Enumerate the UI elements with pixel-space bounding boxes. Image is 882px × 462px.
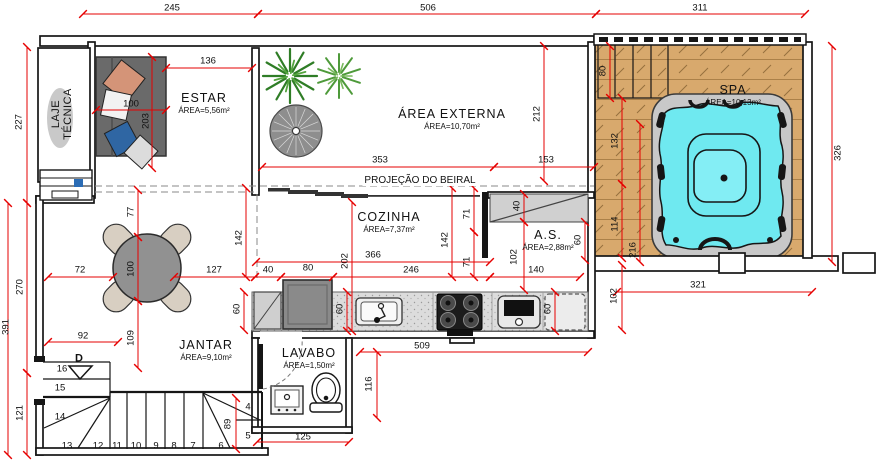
floor-plan: LAJE TÉCNICA ESTAR ÁREA=5,56m² ÁREA EXTE…	[0, 0, 882, 462]
floor-drain	[69, 366, 92, 379]
stair-step-number: 7	[190, 441, 195, 451]
fridge	[283, 280, 332, 329]
dimension-label: 270	[15, 279, 25, 295]
round-table	[113, 234, 181, 302]
dimension-label: 140	[528, 265, 544, 275]
dimension-label: 100	[123, 99, 139, 109]
as-shelf	[490, 194, 588, 222]
dimension-label: 71	[462, 257, 472, 268]
stair-step-number: 8	[171, 441, 176, 451]
toilet	[310, 373, 342, 412]
dimension-label: 102	[609, 288, 619, 304]
dimension-label: 136	[200, 56, 216, 66]
dimension-label: 40	[512, 201, 522, 212]
room-area: ÁREA=10,70m²	[398, 122, 506, 131]
dimension-label: 142	[440, 232, 450, 248]
dimension-label: 311	[692, 3, 707, 13]
dimension-label: 202	[340, 253, 350, 269]
dimension-label: 121	[15, 405, 25, 421]
plant-icon	[318, 54, 360, 98]
room-label-area-externa: ÁREA EXTERNA ÁREA=10,70m²	[398, 107, 506, 131]
dimension-label: 353	[372, 155, 388, 165]
dimension-label: 116	[364, 376, 374, 391]
room-name: ÁREA EXTERNA	[398, 107, 506, 121]
stair-step-number: 15	[55, 383, 66, 393]
floor-plan-drawing	[0, 0, 882, 462]
stair-step-number: 14	[55, 412, 66, 422]
dimension-label: 60	[335, 304, 345, 315]
dimension-label: 506	[420, 3, 436, 13]
dining-set	[98, 219, 196, 317]
dimension-label: 127	[206, 265, 222, 275]
room-area: ÁREA=2,88m²	[522, 243, 573, 252]
room-label-estar: ESTAR ÁREA=5,56m²	[178, 91, 229, 115]
room-label-jantar: JANTAR ÁREA=9,10m²	[179, 338, 233, 362]
drain-label: D	[73, 354, 85, 365]
stove	[437, 294, 482, 336]
dimension-label: 100	[126, 261, 136, 277]
dimension-label: 60	[232, 304, 242, 315]
room-label-lavabo: LAVABO ÁREA=1,50m²	[282, 346, 336, 370]
stair-step-number: 6	[218, 441, 223, 451]
lavabo-sink	[271, 386, 303, 414]
stair-step-number: 4	[245, 402, 250, 412]
stair-step-number: 13	[62, 441, 73, 451]
room-label-cozinha: COZINHA ÁREA=7,37m²	[357, 210, 420, 234]
room-name: COZINHA	[357, 210, 420, 224]
dimension-label: 227	[14, 114, 24, 130]
dimension-label: 245	[164, 3, 180, 13]
stair-step-number: 10	[131, 441, 142, 451]
dimension-label: 142	[234, 230, 244, 246]
room-name: A.S.	[522, 228, 573, 242]
dimension-label: 102	[509, 249, 519, 265]
room-label-laje-tecnica: LAJE TÉCNICA	[50, 74, 74, 154]
dimension-label: 71	[462, 209, 472, 220]
dimension-label: 509	[414, 341, 430, 351]
dimension-label: 246	[403, 265, 419, 275]
dimension-label: 60	[573, 235, 583, 246]
as-wall-stub	[482, 192, 488, 258]
room-label-as: A.S. ÁREA=2,88m²	[522, 228, 573, 252]
dimension-label: 60	[543, 304, 553, 315]
sliding-door	[268, 188, 480, 198]
dimension-label: 77	[126, 207, 136, 218]
hot-tub	[652, 94, 792, 258]
room-name: LAVABO	[282, 346, 336, 360]
stair-step-number: 16	[57, 364, 68, 374]
stair-step-number: 9	[153, 441, 158, 451]
stair-step-number: 12	[93, 441, 104, 451]
dimension-label: 321	[690, 280, 706, 290]
dimension-label: 89	[223, 419, 233, 430]
dimension-label: 72	[75, 265, 86, 275]
sofa	[96, 57, 166, 169]
stair-step-number: 5	[245, 431, 250, 441]
room-name: LAJE TÉCNICA	[50, 74, 74, 154]
room-name: JANTAR	[179, 338, 233, 352]
room-label-spa: SPA ÁREA=10,13m²	[705, 83, 761, 107]
room-name: SPA	[705, 83, 761, 97]
cabinet	[254, 292, 281, 329]
round-chair	[270, 105, 322, 157]
dimension-label: 109	[126, 330, 136, 346]
room-area: ÁREA=1,50m²	[282, 361, 336, 370]
dimension-label: 326	[833, 145, 843, 161]
dimension-label: 216	[628, 242, 638, 258]
dimension-label: 153	[538, 155, 554, 165]
dimension-label: 80	[598, 66, 608, 77]
laundry-tank	[498, 296, 540, 328]
eave-projection-label: PROJEÇÃO DO BEIRAL	[362, 176, 477, 186]
dimension-label: 114	[610, 216, 620, 231]
kitchen-sink	[356, 298, 402, 325]
dimension-label: 80	[303, 263, 314, 273]
dimension-label: 132	[610, 133, 620, 149]
plant-icon	[263, 49, 317, 103]
room-area: ÁREA=9,10m²	[179, 353, 233, 362]
room-area: ÁREA=5,56m²	[178, 106, 229, 115]
equipment-icon	[74, 179, 83, 187]
dimension-label: 125	[295, 432, 311, 442]
dimension-label: 203	[141, 113, 151, 129]
dimension-label: 391	[1, 319, 11, 335]
pergola-dashed-wall	[594, 34, 806, 45]
dimension-label: 40	[263, 265, 274, 275]
room-name: ESTAR	[178, 91, 229, 105]
dimension-label: 212	[532, 106, 542, 122]
dimension-label: 366	[365, 250, 381, 260]
dimension-label: 92	[78, 331, 89, 341]
room-area: ÁREA=10,13m²	[705, 98, 761, 107]
room-area: ÁREA=7,37m²	[357, 225, 420, 234]
stair-step-number: 11	[112, 441, 122, 451]
